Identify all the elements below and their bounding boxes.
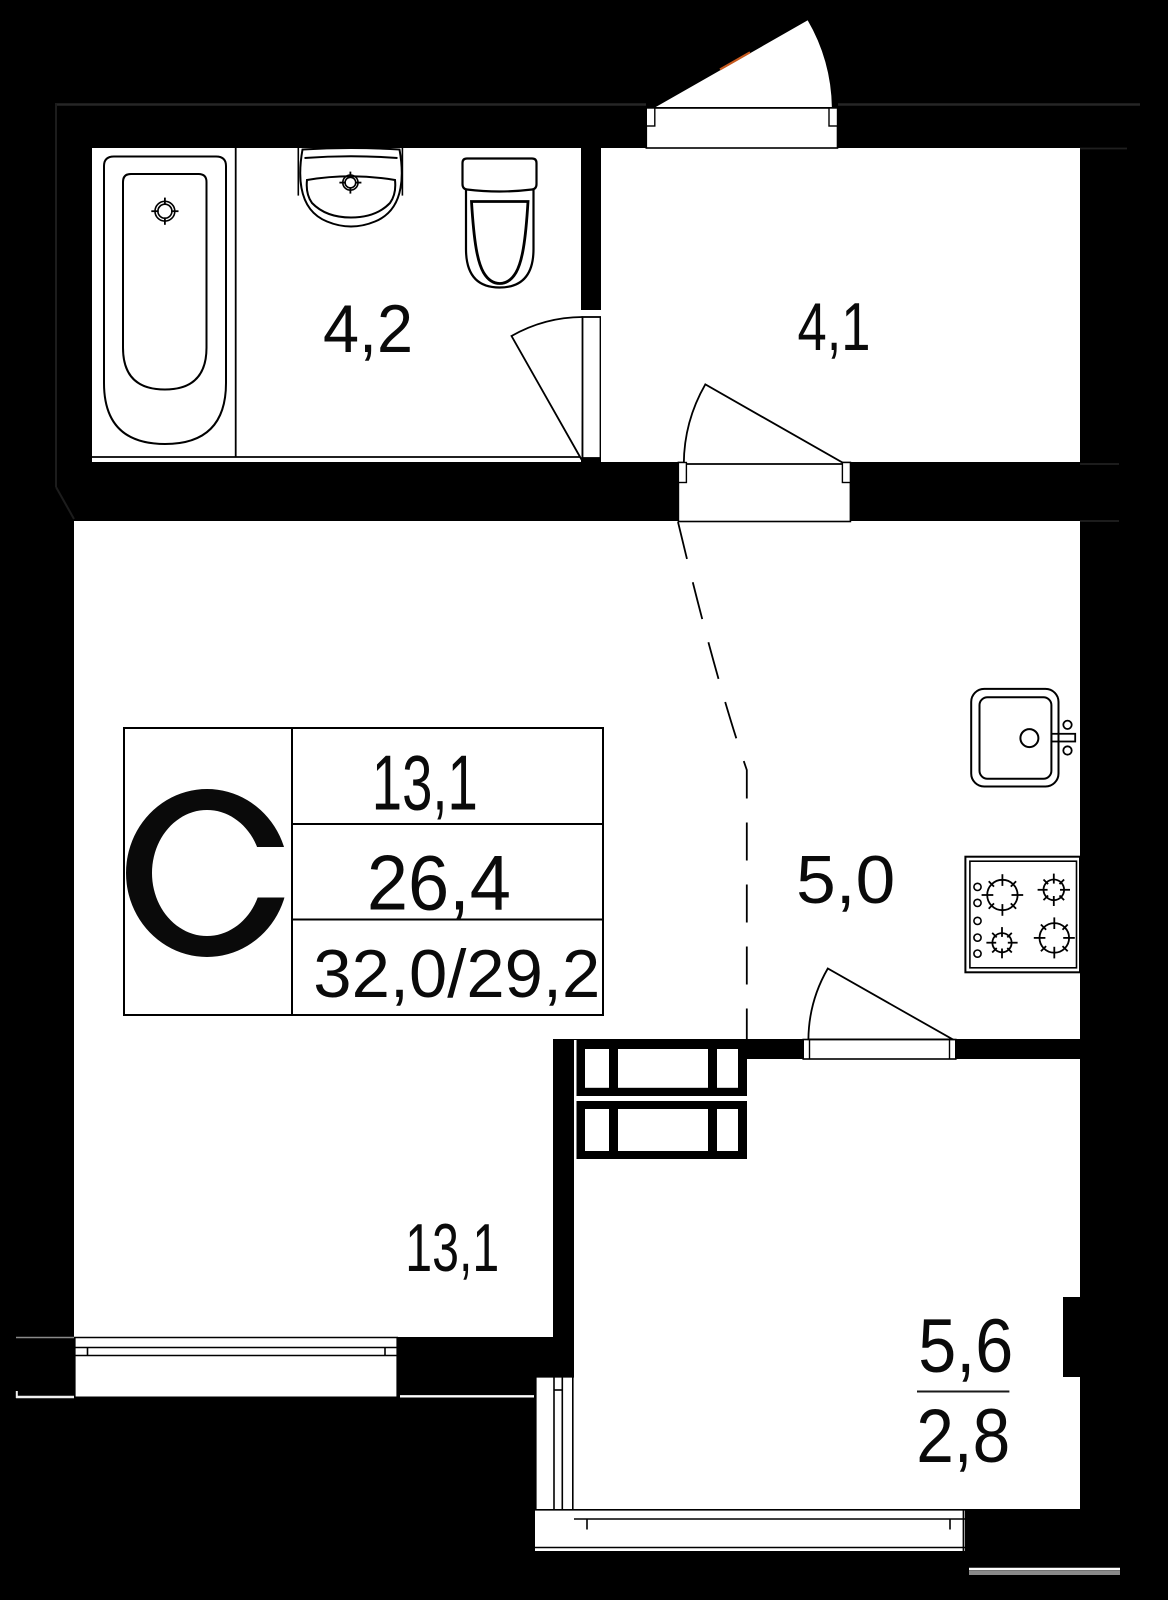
svg-text:13,1: 13,1 <box>405 1210 499 1286</box>
svg-text:32,0/29,2: 32,0/29,2 <box>313 936 600 1012</box>
svg-text:13,1: 13,1 <box>372 739 478 827</box>
svg-text:5,6: 5,6 <box>918 1304 1013 1389</box>
svg-text:2,8: 2,8 <box>916 1394 1010 1479</box>
svg-text:4,2: 4,2 <box>323 291 413 367</box>
svg-text:26,4: 26,4 <box>367 839 511 927</box>
svg-text:5,0: 5,0 <box>796 842 895 918</box>
svg-text:4,1: 4,1 <box>798 289 871 365</box>
